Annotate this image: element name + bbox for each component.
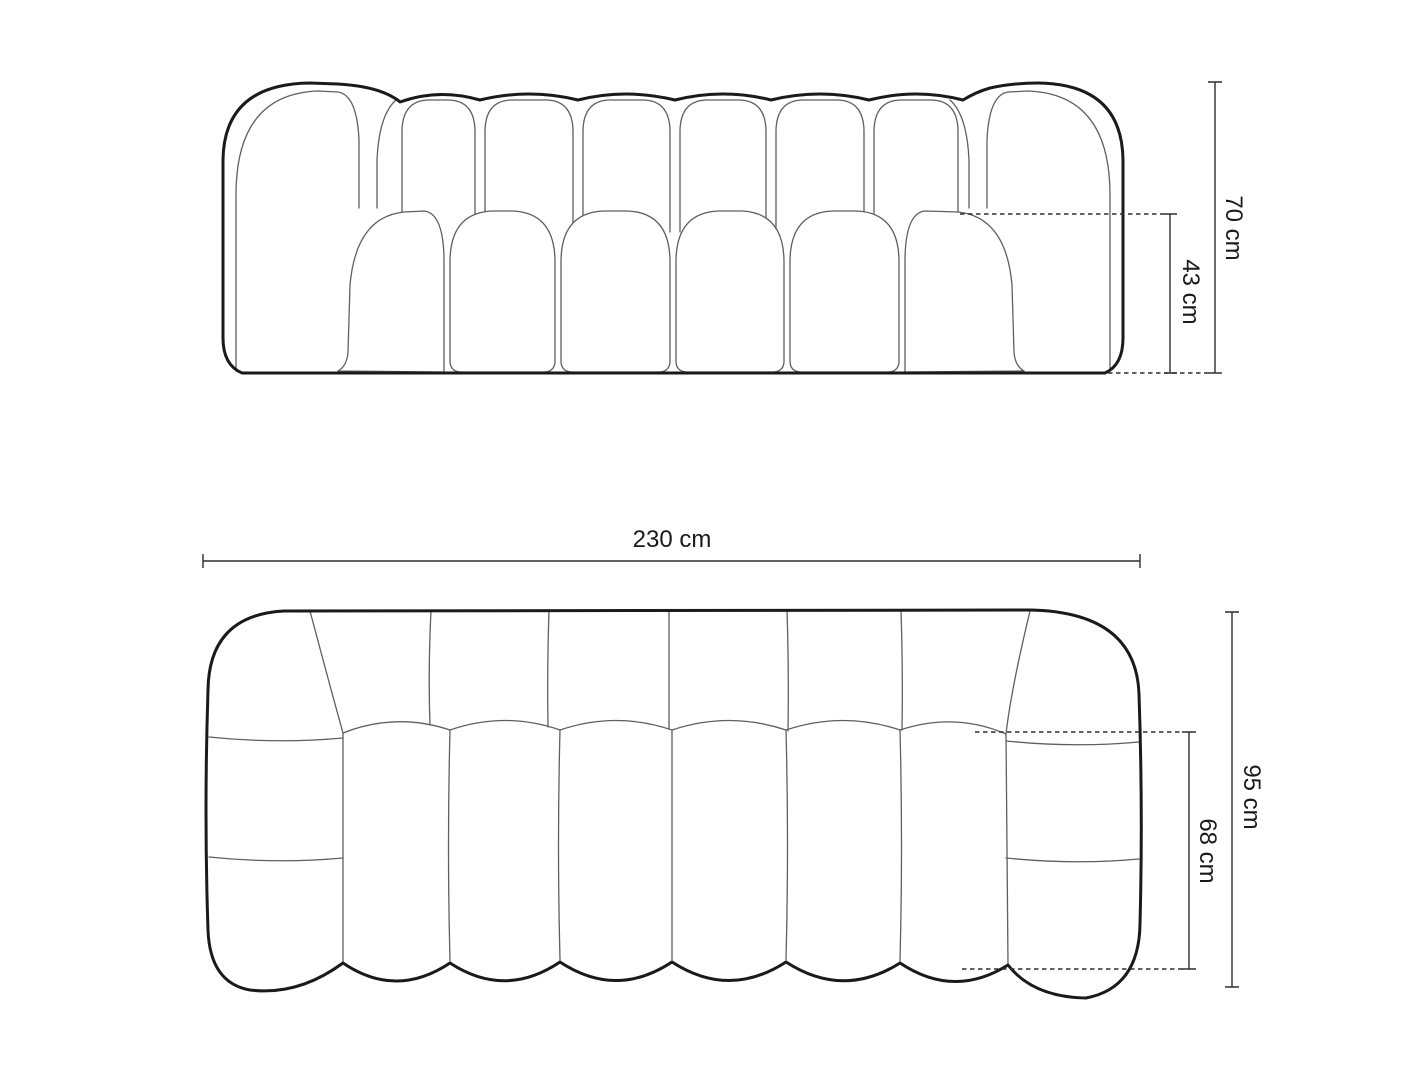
- top-view: [206, 610, 1141, 998]
- seat-height-label: 43 cm: [1175, 232, 1205, 352]
- sofa-dimension-diagram: 70 cm 43 cm 230 cm 95 cm 68 cm: [0, 0, 1428, 1071]
- front-seat-cushions: [338, 211, 1024, 372]
- front-view: [223, 83, 1123, 373]
- total-width-dimension-line: [203, 554, 1140, 568]
- total-width-label: 230 cm: [612, 525, 732, 555]
- total-depth-label: 95 cm: [1236, 737, 1266, 857]
- seat-depth-label: 68 cm: [1192, 791, 1222, 911]
- total-height-label: 70 cm: [1218, 168, 1248, 288]
